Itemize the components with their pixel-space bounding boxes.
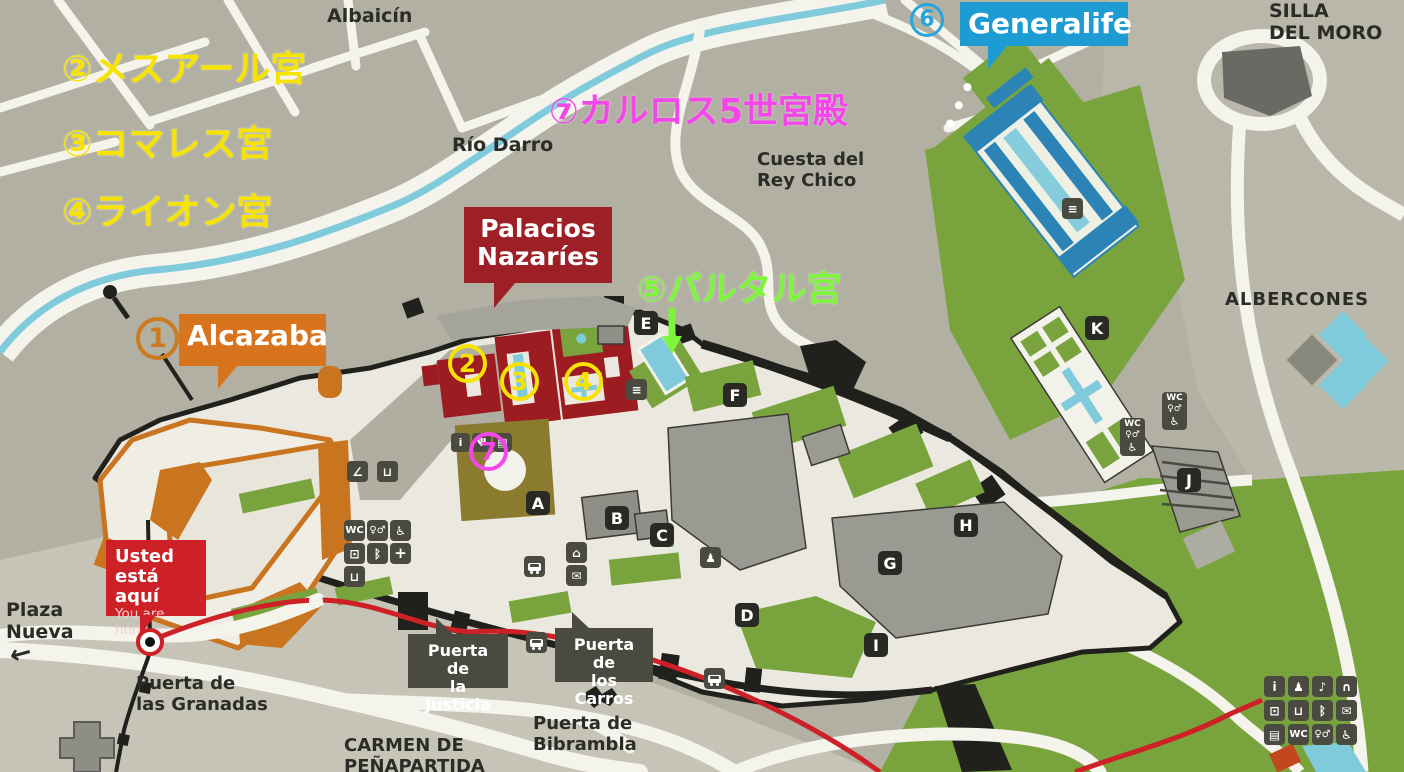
you-are-here-marker (136, 628, 164, 656)
drinks-icon-entrance: ⊔ (1288, 700, 1309, 721)
label-carmen-penapartida: CARMEN DE PEÑAPARTIDA (344, 736, 485, 772)
marker-letter-k: K (1085, 316, 1109, 340)
marker-letter-b: B (605, 506, 629, 530)
label-albercones: ALBERCONES (1225, 290, 1369, 311)
map-number-7: 7 (469, 432, 508, 471)
map-number-1: 1 (136, 317, 179, 360)
palacios-nazaries-badge: Palacios Nazaríes (464, 207, 612, 283)
marker-letter-c: C (650, 523, 674, 547)
generalife-badge-tail (988, 45, 1008, 69)
stairs-icon-1: ≡ (626, 379, 647, 400)
shop-icon-entrance: ▤ (1264, 724, 1285, 745)
puerta-justicia-badge: Puerta de la Justicia (408, 634, 508, 688)
bluetooth-icon: ᛒ (367, 543, 388, 564)
info-icon-carlos: i (451, 433, 470, 452)
headphones-icon: ∩ (1336, 676, 1357, 697)
label-puerta-granadas: Puerta de las Granadas (136, 674, 268, 715)
alhambra-tourist-map: Albaicín Río Darro Cuesta del Rey Chico … (0, 0, 1404, 772)
taxi-icon (524, 556, 545, 577)
wc-icon: WC (344, 520, 365, 541)
wc-badge-right-1: WC ♀♂ ♿ (1120, 418, 1145, 456)
info-icon-entrance: i (1264, 676, 1285, 697)
wheelchair-icon: ♿ (390, 520, 411, 541)
label-puerta-bibrambla: Puerta de Bibrambla (533, 714, 637, 755)
bus-stop-icon-2 (704, 668, 725, 689)
map-number-6: 6 (910, 3, 944, 37)
puerta-justicia-badge-tail (436, 618, 454, 635)
generalife-badge: Generalife (960, 2, 1128, 46)
drinks-icon: ⊔ (377, 461, 398, 482)
marker-letter-g: G (878, 551, 902, 575)
annotation-lions: ④ライオン宮 (62, 195, 272, 231)
attendant-icon-entrance: ♟ (1288, 676, 1309, 697)
cuesta-rey-chico-path (675, 30, 852, 372)
wheelchair-icon-entrance: ♿ (1336, 724, 1357, 745)
wc-badge-right-2: WC ♀♂ ♿ (1162, 392, 1187, 430)
label-plaza-nueva: Plaza Nueva (6, 600, 74, 644)
drinks-icon-2: ⊔ (344, 566, 365, 587)
map-number-2: 2 (448, 344, 487, 383)
marker-letter-e: E (634, 311, 658, 335)
rest-area-icon: ∠ (347, 461, 368, 482)
map-number-3: 3 (500, 362, 539, 401)
puerta-carros-badge: Puerta de los Carros (555, 628, 653, 682)
label-albaicin: Albaicín (327, 6, 412, 28)
you-are-here-dot (145, 637, 155, 647)
annotation-carlos-v: ⑦カルロス5世宮殿 (549, 95, 848, 130)
mail-icon-entrance: ✉ (1336, 700, 1357, 721)
label-rio-darro: Río Darro (452, 135, 553, 157)
marker-letter-f: F (723, 383, 747, 407)
map-number-4: 4 (564, 362, 603, 401)
locker-icon-entrance: ⊡ (1264, 700, 1285, 721)
locker-icon: ⊡ (344, 543, 365, 564)
alcazaba-badge-tail (218, 365, 238, 389)
attendant-icon: ♟ (700, 547, 721, 568)
wc-icon-entrance: WC (1288, 724, 1309, 745)
marker-letter-i: I (864, 633, 888, 657)
label-cuesta-rey-chico: Cuesta del Rey Chico (757, 150, 864, 191)
stairs-icon-2: ≡ (1062, 198, 1083, 219)
mail-icon: ✉ (566, 565, 587, 586)
toilets-icon: ♀♂ (367, 520, 388, 541)
audioguide-icon: ♪ (1312, 676, 1333, 697)
marker-letter-d: D (735, 603, 759, 627)
marker-letter-h: H (954, 513, 978, 537)
marker-letter-a: A (526, 491, 550, 515)
alcazaba-badge: Alcazaba (179, 314, 326, 366)
puerta-carros-badge-tail (572, 612, 590, 629)
bus-stop-icon-1 (526, 632, 547, 653)
you-are-here-badge: Usted está aquí You are here (106, 540, 206, 616)
palacios-badge-tail (494, 282, 516, 308)
annotation-comares: ③コマレス宮 (62, 127, 272, 163)
label-silla-del-moro: SILLA DEL MORO (1269, 1, 1382, 45)
monument-icon: ⌂ (566, 542, 587, 563)
annotation-mexuar: ②メスアール宮 (62, 52, 306, 88)
annotation-partal: ⑤パルタル宮 (637, 273, 842, 308)
bluetooth-icon-entrance: ᛒ (1312, 700, 1333, 721)
marker-letter-j: J (1177, 468, 1201, 492)
first-aid-icon: + (390, 543, 411, 564)
toilets-icon-entrance: ♀♂ (1312, 724, 1333, 745)
